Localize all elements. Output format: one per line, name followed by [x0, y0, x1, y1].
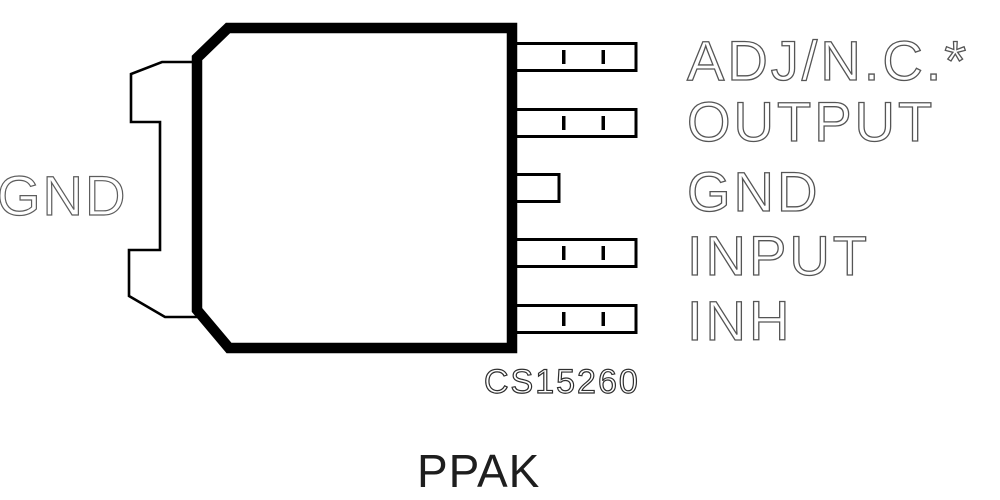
pin-label-gnd: GND: [687, 164, 820, 220]
pin-lead-input: [507, 240, 637, 267]
package-body: [197, 28, 512, 348]
pin-label-input: INPUT: [687, 228, 870, 284]
mounting-tab: [129, 62, 197, 317]
pin-lead-output: [507, 110, 637, 137]
pin-tick-marks: [562, 50, 605, 326]
pin-label-inh: INH: [687, 293, 792, 349]
pin-lead-adj-nc: [507, 44, 637, 71]
pinout-diagram: GND ADJ/N.C.* OUTPUT GND INPUT INH CS152…: [0, 0, 1000, 500]
package-name: PPAK: [417, 448, 540, 494]
tab-label-gnd: GND: [0, 168, 127, 224]
pin-label-output: OUTPUT: [687, 94, 935, 150]
drawing-code: CS15260: [484, 365, 640, 399]
pin-lead-inh: [507, 306, 637, 333]
pin-label-adj-nc: ADJ/N.C.*: [687, 33, 969, 89]
